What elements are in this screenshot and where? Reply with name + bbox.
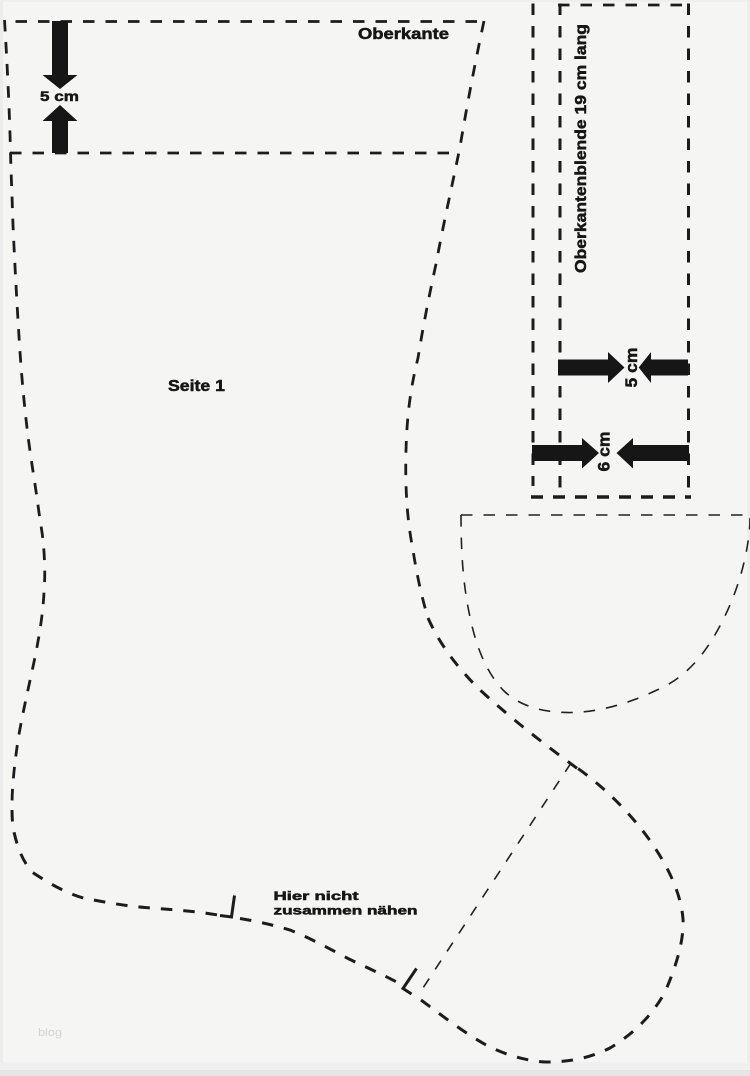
svg-text:blog: blog [38,1027,62,1039]
svg-text:Seite 1: Seite 1 [168,378,225,395]
svg-text:5 cm: 5 cm [40,88,79,104]
svg-text:Hier nicht: Hier nicht [274,889,359,903]
svg-text:6 cm: 6 cm [596,432,614,472]
svg-text:zusammen nähen: zusammen nähen [274,904,418,918]
svg-text:Oberkante: Oberkante [358,26,449,43]
svg-text:Oberkantenblende 19 cm lang: Oberkantenblende 19 cm lang [573,24,590,273]
svg-text:5 cm: 5 cm [623,348,641,388]
